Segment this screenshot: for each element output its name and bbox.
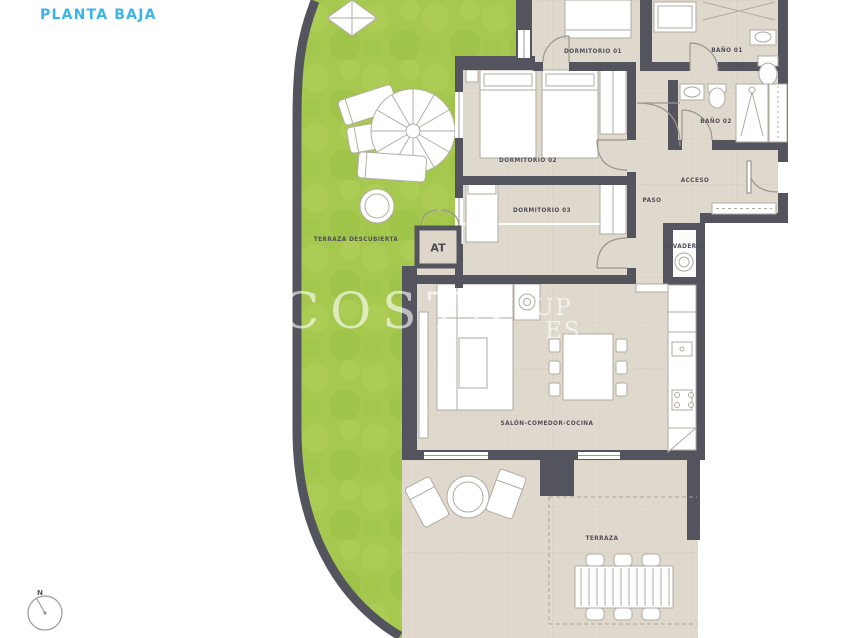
room-label-salon-comedor-cocina: SALÓN-COMEDOR-COCINA: [501, 420, 594, 426]
terraza-chair: [614, 608, 632, 620]
floor-plan-page: PLANTA BAJA DORMITORIO 01 BAÑO 01 BAÑO 0…: [0, 0, 859, 638]
dining-chair: [616, 383, 627, 396]
floor-plan-canvas: [0, 0, 859, 638]
entry-door-leaf: [747, 161, 751, 193]
tv-bench: [419, 312, 428, 438]
compass-icon: [28, 596, 62, 630]
room-label-acceso: ACCESO: [681, 177, 709, 183]
terraza-chair: [642, 554, 660, 566]
dining-chair: [549, 339, 560, 352]
structural-pillar: [540, 450, 574, 496]
kitchen-counter-top: [636, 284, 668, 292]
dining-chair: [616, 361, 627, 374]
terraza-dining-table: [575, 566, 673, 608]
room-label-dormitorio-02: DORMITORIO 02: [499, 157, 557, 163]
at-box-label: AT: [430, 242, 445, 255]
coffee-table: [459, 338, 487, 388]
sun-lounger: [357, 152, 427, 183]
dining-chair: [549, 383, 560, 396]
room-label-paso: PASO: [643, 197, 662, 203]
dining-chair: [616, 339, 627, 352]
room-label-bano-02: BAÑO 02: [700, 118, 732, 124]
dining-table: [563, 334, 613, 400]
room-label-terraza: TERRAZA: [586, 535, 619, 541]
terraza-chair: [614, 554, 632, 566]
room-label-terraza-descubierta: TERRAZA DESCUBIERTA: [314, 236, 398, 242]
nightstand: [466, 70, 478, 82]
terraza-chair: [586, 608, 604, 620]
room-label-lavadero: LAVADERO: [664, 243, 702, 249]
terraza-chair: [642, 608, 660, 620]
entry-opening: [778, 162, 788, 193]
bed-dormitorio-01: [565, 0, 631, 38]
kitchen-counter: [668, 285, 696, 450]
compass-north-label: N: [37, 588, 43, 596]
dining-chair: [549, 361, 560, 374]
floor-title: PLANTA BAJA: [40, 7, 157, 23]
terraza-chair: [586, 554, 604, 566]
room-label-bano-01: BAÑO 01: [711, 47, 743, 53]
room-label-dormitorio-01: DORMITORIO 01: [564, 48, 622, 54]
room-label-dormitorio-03: DORMITORIO 03: [513, 207, 571, 213]
